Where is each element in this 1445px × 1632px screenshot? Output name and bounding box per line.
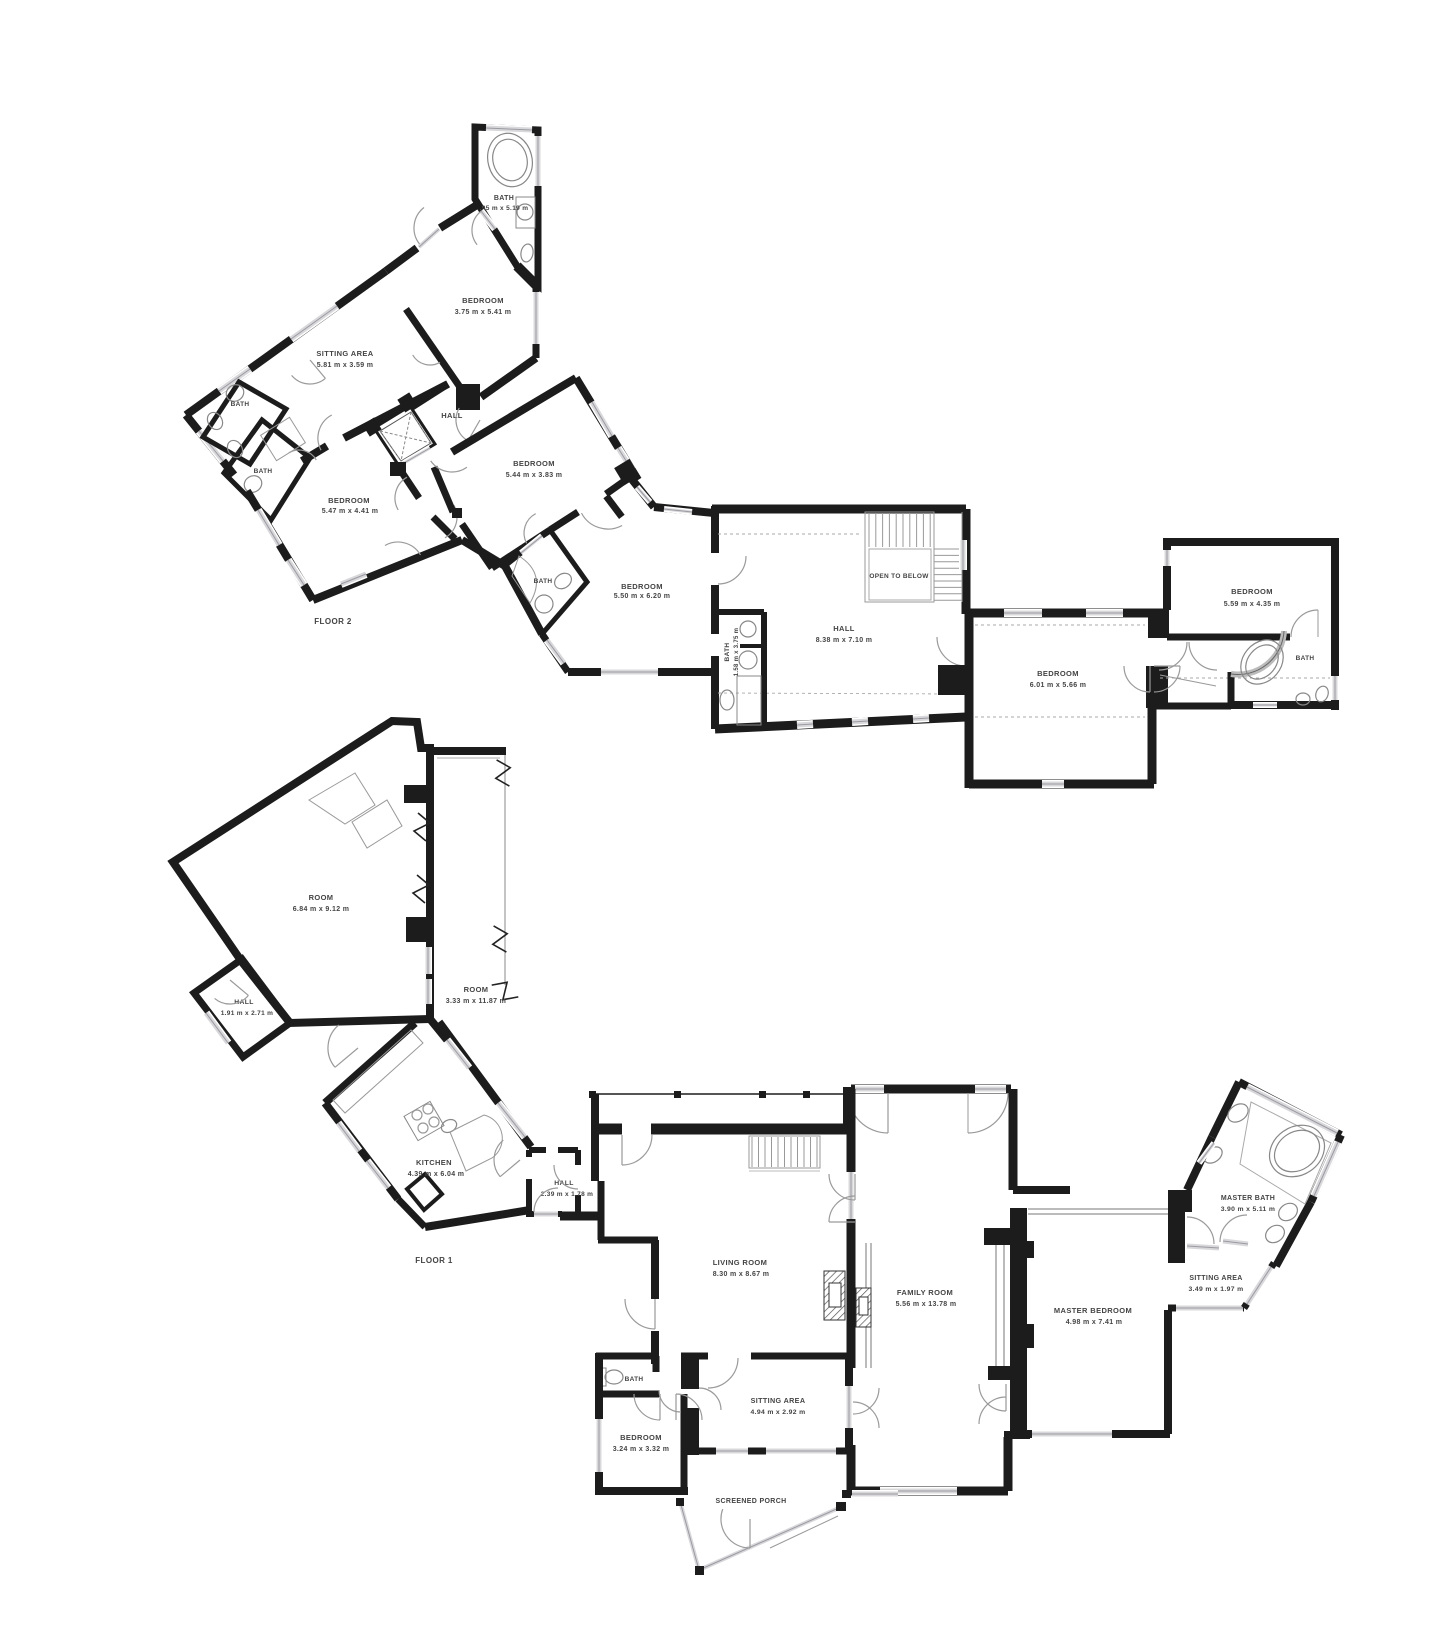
svg-text:3.49 m x 1.97 m: 3.49 m x 1.97 m (1189, 1286, 1244, 1293)
svg-text:MASTER BATH: MASTER BATH (1221, 1195, 1275, 1202)
svg-text:8.30 m x 8.67 m: 8.30 m x 8.67 m (713, 1271, 770, 1278)
svg-text:4.98 m x 7.41 m: 4.98 m x 7.41 m (1066, 1319, 1123, 1326)
svg-text:3.33 m x 11.87 m: 3.33 m x 11.87 m (446, 998, 506, 1005)
svg-text:1.91 m x 2.71 m: 1.91 m x 2.71 m (221, 1010, 274, 1017)
svg-text:BATH: BATH (625, 1376, 644, 1383)
svg-text:5.59 m x 4.35 m: 5.59 m x 4.35 m (1224, 601, 1281, 608)
svg-text:FAMILY ROOM: FAMILY ROOM (897, 1288, 953, 1297)
svg-text:3.24 m x 3.32 m: 3.24 m x 3.32 m (613, 1446, 670, 1453)
svg-text:BATH: BATH (231, 401, 250, 408)
svg-text:3.75 m x 5.41 m: 3.75 m x 5.41 m (455, 309, 512, 316)
svg-text:2.39 m x 1.78 m: 2.39 m x 1.78 m (541, 1191, 594, 1198)
svg-text:5.47 m x 4.41 m: 5.47 m x 4.41 m (322, 508, 379, 515)
svg-text:FLOOR 1: FLOOR 1 (415, 1256, 453, 1265)
svg-text:HALL: HALL (441, 411, 463, 420)
svg-text:3.90 m x 5.11 m: 3.90 m x 5.11 m (1221, 1206, 1276, 1213)
svg-text:5.81 m x 3.59 m: 5.81 m x 3.59 m (317, 362, 374, 369)
svg-text:BATH: BATH (494, 195, 514, 202)
svg-text:BATH: BATH (724, 643, 731, 662)
svg-text:HALL: HALL (554, 1180, 573, 1187)
svg-text:OPEN TO BELOW: OPEN TO BELOW (869, 573, 929, 580)
svg-text:SITTING AREA: SITTING AREA (316, 349, 373, 358)
svg-text:4.39 m x 6.04 m: 4.39 m x 6.04 m (408, 1171, 465, 1178)
svg-text:MASTER BEDROOM: MASTER BEDROOM (1054, 1306, 1132, 1315)
svg-text:BEDROOM: BEDROOM (513, 459, 555, 468)
svg-text:BEDROOM: BEDROOM (328, 496, 370, 505)
svg-text:BEDROOM: BEDROOM (1037, 669, 1079, 678)
svg-text:ROOM: ROOM (464, 985, 489, 994)
svg-text:SITTING AREA: SITTING AREA (1189, 1275, 1242, 1282)
svg-text:5.44 m x 3.83 m: 5.44 m x 3.83 m (506, 472, 563, 479)
svg-text:FLOOR 2: FLOOR 2 (314, 617, 352, 626)
svg-text:1.58 m x 3.75 m: 1.58 m x 3.75 m (734, 628, 740, 677)
svg-text:SCREENED PORCH: SCREENED PORCH (715, 1498, 786, 1505)
svg-text:BEDROOM: BEDROOM (1231, 587, 1273, 596)
svg-text:LIVING ROOM: LIVING ROOM (713, 1258, 768, 1267)
svg-text:6.01 m x 5.66 m: 6.01 m x 5.66 m (1030, 682, 1087, 689)
svg-text:ROOM: ROOM (309, 893, 334, 902)
svg-text:BEDROOM: BEDROOM (621, 582, 663, 591)
svg-text:4.94 m x 2.92 m: 4.94 m x 2.92 m (751, 1409, 806, 1416)
svg-text:.95 m x 5.19 m: .95 m x 5.19 m (480, 205, 529, 212)
svg-text:SITTING AREA: SITTING AREA (751, 1396, 806, 1405)
svg-text:5.50 m x 6.20 m: 5.50 m x 6.20 m (614, 593, 671, 600)
svg-text:BEDROOM: BEDROOM (462, 296, 504, 305)
svg-text:6.84 m x 9.12 m: 6.84 m x 9.12 m (293, 906, 350, 913)
svg-text:8.38 m x 7.10 m: 8.38 m x 7.10 m (816, 637, 873, 644)
svg-text:BATH: BATH (1296, 655, 1315, 662)
svg-text:KITCHEN: KITCHEN (416, 1158, 452, 1167)
svg-text:BEDROOM: BEDROOM (620, 1433, 662, 1442)
svg-text:5.56 m x 13.78 m: 5.56 m x 13.78 m (896, 1301, 957, 1308)
svg-text:HALL: HALL (833, 624, 855, 633)
svg-text:BATH: BATH (534, 578, 553, 585)
svg-text:BATH: BATH (254, 468, 273, 475)
